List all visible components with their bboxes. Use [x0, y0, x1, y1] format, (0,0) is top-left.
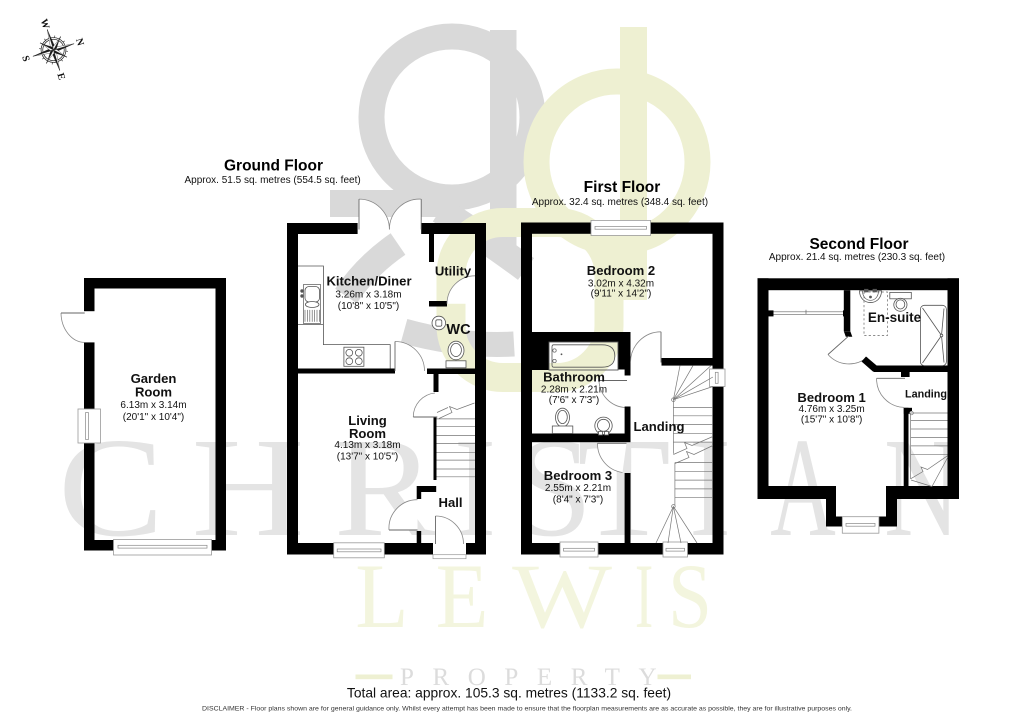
svg-text:4.13m x 3.18m: 4.13m x 3.18m [334, 440, 400, 451]
svg-text:(9'11" x 14'2"): (9'11" x 14'2") [591, 289, 652, 300]
svg-text:S: S [668, 546, 712, 648]
svg-text:Ground Floor: Ground Floor [224, 158, 323, 175]
svg-text:I: I [635, 546, 653, 648]
svg-text:Bathroom: Bathroom [543, 370, 605, 385]
svg-text:(15'7" x 10'8"): (15'7" x 10'8") [801, 414, 863, 425]
svg-text:First Floor: First Floor [584, 179, 661, 196]
svg-text:L: L [355, 546, 408, 648]
svg-text:4.76m x 3.25m: 4.76m x 3.25m [799, 404, 865, 415]
svg-text:WC: WC [446, 322, 471, 338]
svg-text:2.28m x 2.21m: 2.28m x 2.21m [541, 385, 607, 396]
svg-text:Approx. 32.4 sq. metres (348.4: Approx. 32.4 sq. metres (348.4 sq. feet) [532, 197, 708, 208]
svg-text:Hall: Hall [438, 495, 462, 510]
svg-text:2.55m x 2.21m: 2.55m x 2.21m [545, 483, 611, 494]
svg-text:Room: Room [135, 384, 172, 399]
svg-text:Landing: Landing [634, 419, 685, 434]
svg-text:(7'6" x 7'3"): (7'6" x 7'3") [549, 395, 599, 406]
svg-text:(20'1" x 10'4"): (20'1" x 10'4") [123, 412, 185, 423]
svg-text:(13'7" x 10'5"): (13'7" x 10'5") [337, 452, 399, 463]
svg-text:DISCLAIMER - Floor plans show: DISCLAIMER - Floor plans shown are for g… [202, 707, 852, 713]
svg-text:6.13m x 3.14m: 6.13m x 3.14m [120, 400, 186, 411]
svg-text:Total area: approx. 105.3 sq.: Total area: approx. 105.3 sq. metres (11… [347, 686, 671, 701]
svg-text:En-suite: En-suite [868, 310, 922, 325]
svg-text:Landing: Landing [905, 389, 947, 401]
svg-text:(10'8" x 10'5"): (10'8" x 10'5") [338, 301, 400, 312]
svg-text:(8'4" x 7'3"): (8'4" x 7'3") [553, 495, 603, 506]
svg-text:Second Floor: Second Floor [809, 236, 908, 253]
svg-text:Bedroom 3: Bedroom 3 [544, 468, 612, 483]
svg-text:3.26m x 3.18m: 3.26m x 3.18m [335, 290, 401, 301]
svg-text:Utility: Utility [435, 264, 472, 279]
svg-text:Room: Room [349, 426, 386, 441]
svg-text:Kitchen/Diner: Kitchen/Diner [326, 274, 411, 289]
svg-text:Bedroom 1: Bedroom 1 [797, 390, 865, 405]
svg-text:E: E [436, 546, 489, 648]
svg-text:Approx. 51.5 sq. metres (554.5: Approx. 51.5 sq. metres (554.5 sq. feet) [184, 175, 360, 186]
svg-text:Approx. 21.4 sq. metres (230.3: Approx. 21.4 sq. metres (230.3 sq. feet) [769, 252, 945, 263]
svg-text:W: W [512, 546, 612, 647]
svg-text:Bedroom 2: Bedroom 2 [587, 263, 655, 278]
